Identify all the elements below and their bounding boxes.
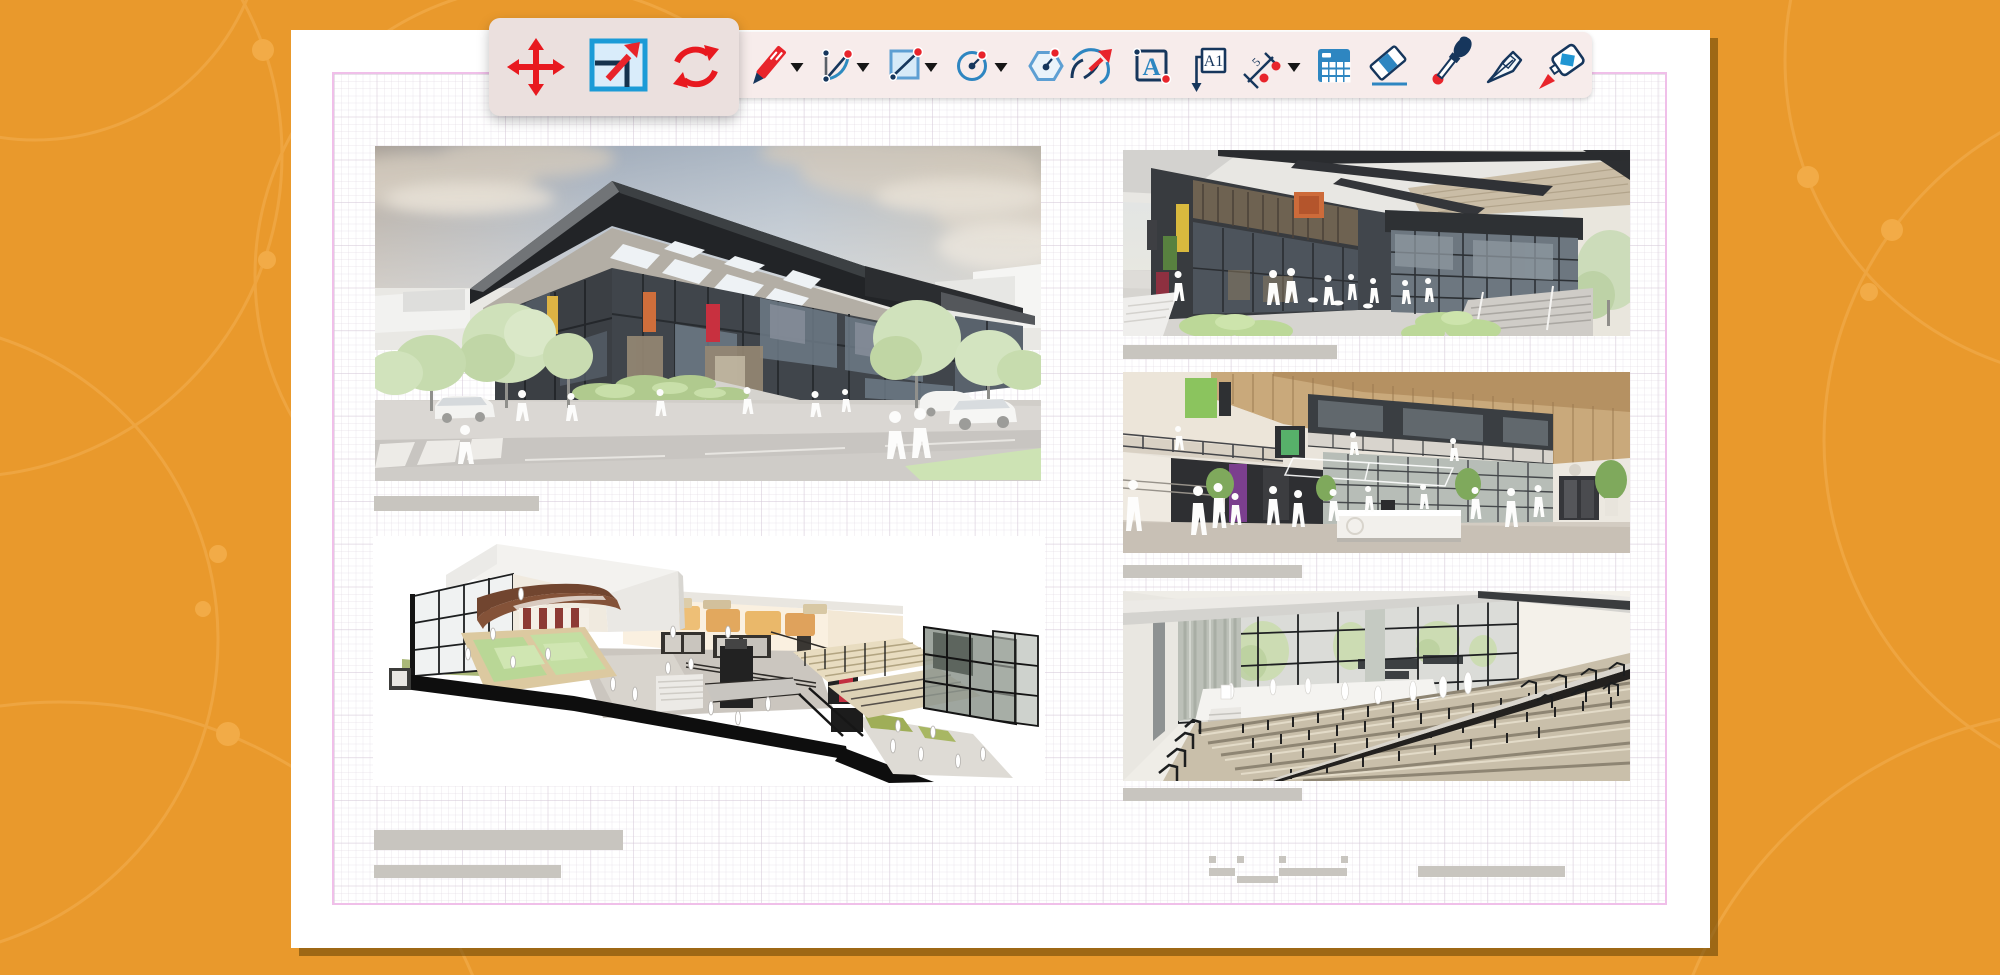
svg-text:A: A xyxy=(1142,54,1160,81)
svg-text:A1: A1 xyxy=(1204,53,1224,70)
svg-text:5: 5 xyxy=(1249,55,1263,69)
